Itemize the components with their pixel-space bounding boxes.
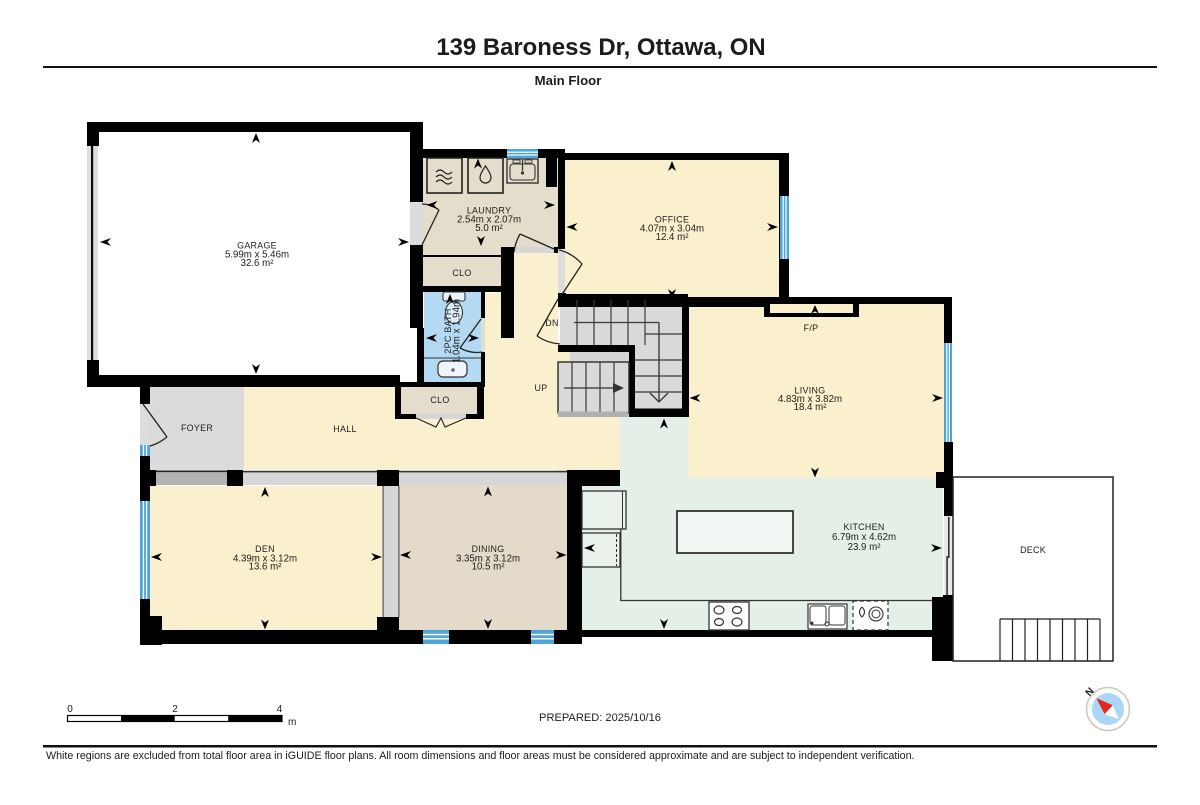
svg-text:DECK: DECK: [1020, 545, 1046, 555]
svg-text:KITCHEN: KITCHEN: [843, 522, 884, 532]
svg-text:White regions are excluded fro: White regions are excluded from total fl…: [46, 750, 915, 762]
svg-text:2: 2: [172, 704, 178, 715]
svg-text:12.4 m²: 12.4 m²: [656, 232, 690, 243]
svg-text:HALL: HALL: [333, 424, 356, 434]
svg-text:5.0 m²: 5.0 m²: [475, 223, 503, 234]
svg-text:CLO: CLO: [452, 268, 471, 278]
svg-text:4: 4: [277, 704, 283, 715]
svg-text:F/P: F/P: [804, 323, 819, 333]
svg-text:UP: UP: [535, 383, 548, 393]
svg-text:23.9 m²: 23.9 m²: [848, 542, 882, 553]
svg-text:13.6 m²: 13.6 m²: [249, 562, 283, 573]
svg-text:1.04m x 1.94m: 1.04m x 1.94m: [452, 299, 463, 363]
svg-text:32.6 m²: 32.6 m²: [241, 258, 275, 269]
svg-text:FOYER: FOYER: [181, 423, 213, 433]
svg-text:139 Baroness Dr, Ottawa, ON: 139 Baroness Dr, Ottawa, ON: [436, 34, 765, 61]
svg-text:0: 0: [67, 704, 73, 715]
svg-text:10.5 m²: 10.5 m²: [472, 562, 506, 573]
svg-text:18.4 m²: 18.4 m²: [794, 402, 828, 413]
svg-text:m: m: [288, 717, 296, 728]
svg-text:PREPARED: 2025/10/16: PREPARED: 2025/10/16: [539, 712, 661, 724]
svg-text:DN: DN: [545, 318, 558, 328]
svg-text:Main Floor: Main Floor: [535, 73, 602, 88]
svg-text:CLO: CLO: [430, 395, 449, 405]
